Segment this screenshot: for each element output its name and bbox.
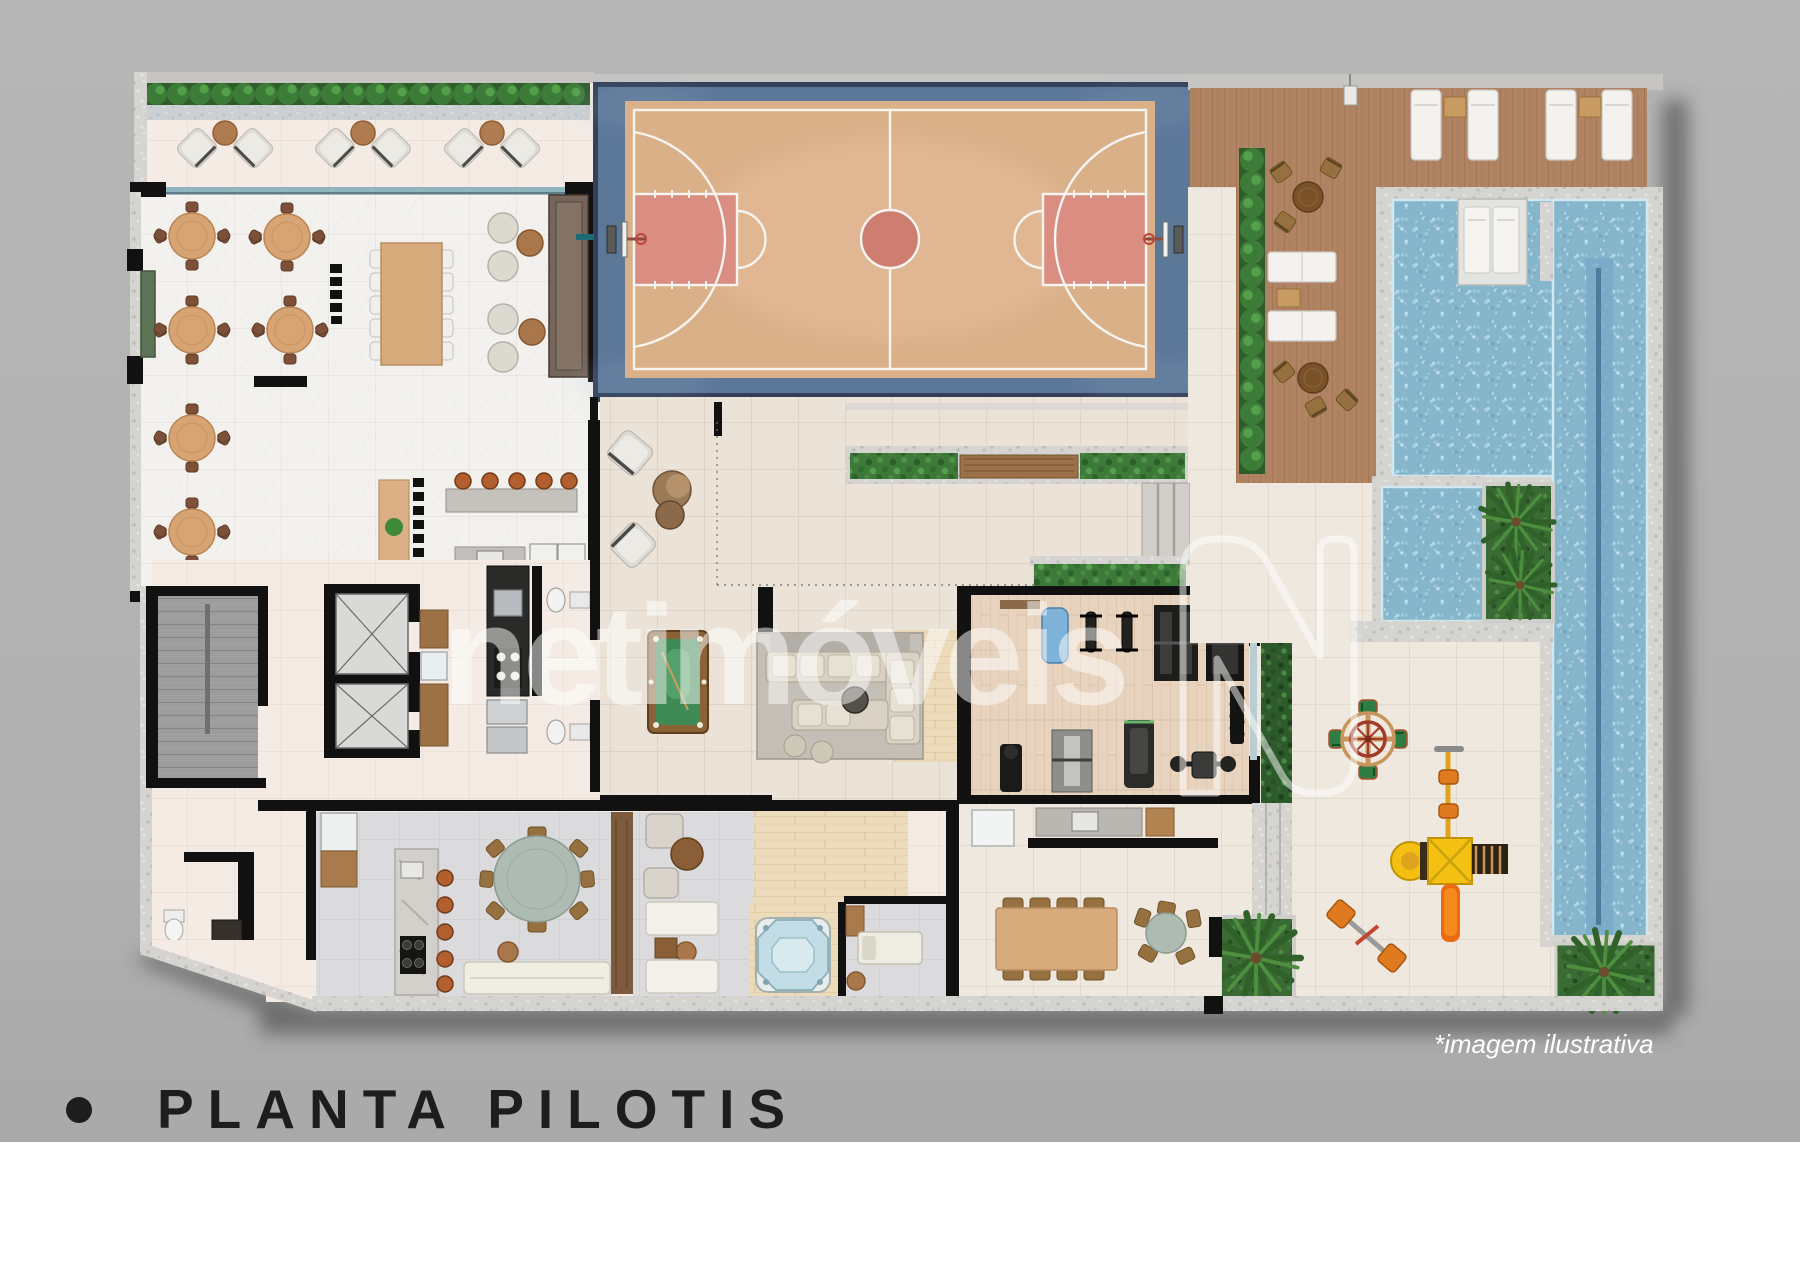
- svg-text:netimóveis: netimóveis: [442, 576, 1125, 735]
- svg-text:PLANTA PILOTIS: PLANTA PILOTIS: [157, 1078, 799, 1140]
- svg-text:*imagem ilustrativa: *imagem ilustrativa: [1434, 1029, 1654, 1059]
